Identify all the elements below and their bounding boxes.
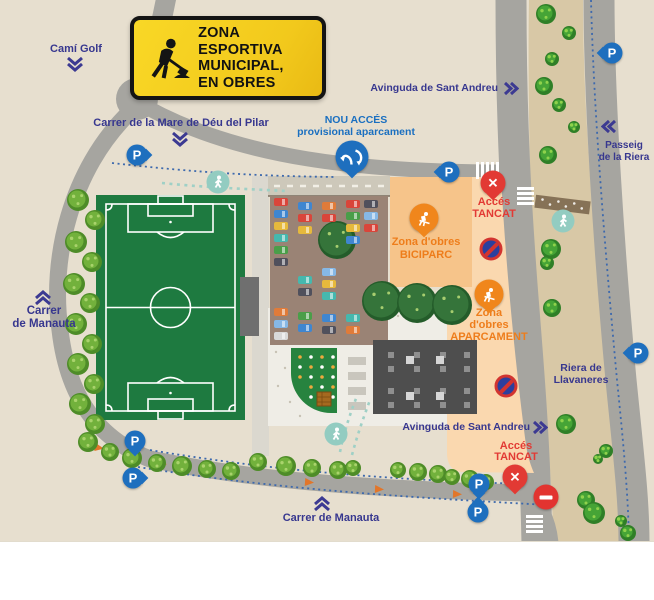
- street-manauta-sud: Carrer de Manauta: [283, 512, 380, 524]
- roadworks-pin-icon: [475, 280, 504, 309]
- parking-letter: P: [608, 46, 617, 61]
- access-closed-icon: ✕: [503, 465, 528, 490]
- pedestrian-icon: [207, 171, 230, 194]
- riera-line-1: Riera de: [554, 362, 609, 374]
- parking-letter: P: [634, 346, 643, 361]
- footer-bar: f X ajllavaneres.cat POLICIA LOCAL LLAVA…: [0, 541, 654, 600]
- parking-letter: P: [133, 148, 142, 163]
- no-parking-icon: [480, 238, 503, 261]
- no-parking-icon: [495, 375, 518, 398]
- sign-line-1: ZONA ESPORTIVA: [198, 25, 314, 58]
- new-access-arrows-icon: [336, 141, 369, 174]
- no-parking-bar: [497, 377, 516, 396]
- parking-letter: P: [131, 434, 140, 449]
- parking-icon: P: [468, 502, 489, 523]
- roadworks-pin-icon: [410, 204, 439, 233]
- biciparc-line-2: BICIPARC: [392, 249, 461, 262]
- manauta-west-line-1: Carrer: [12, 305, 75, 318]
- access-closed-icon: ✕: [481, 171, 506, 196]
- sign-line-2: MUNICIPAL,: [198, 58, 314, 75]
- street-avinguda-sud: Avinguda de Sant Andreu: [402, 421, 530, 433]
- parking-icon: P: [125, 431, 146, 452]
- street-cami-golf: Camí Golf: [50, 43, 102, 55]
- tancat-line-2: TANCAT: [494, 452, 538, 463]
- chevron-left-icon: [601, 119, 617, 134]
- biciparc-line-1: Zona d'obres: [392, 236, 461, 249]
- tancat-line-2: TANCAT: [472, 208, 516, 220]
- street-passeig-riera: Passeig de la Riera: [599, 140, 650, 164]
- no-parking-bar: [482, 240, 501, 259]
- aparcament-line-3: APARCAMENT: [450, 331, 527, 343]
- parking-icon: P: [628, 343, 649, 364]
- chevron-down-icon: [66, 56, 84, 72]
- chevron-up-icon: [313, 496, 331, 512]
- sign-line-3: EN OBRES: [198, 75, 314, 92]
- parking-icon: P: [127, 145, 148, 166]
- parking-letter: P: [474, 505, 483, 520]
- works-warning-sign: ZONA ESPORTIVA MUNICIPAL, EN OBRES: [130, 16, 326, 100]
- closed-mark: ✕: [488, 175, 499, 191]
- closed-strip: [268, 176, 390, 196]
- parking-icon: P: [602, 43, 623, 64]
- nou-acces-line-1: NOU ACCÉS: [297, 114, 415, 126]
- street-mare-de-deu: Carrer de la Mare de Déu del Pilar: [93, 117, 268, 129]
- grandstand: [240, 277, 259, 336]
- closed-mark: ✕: [510, 469, 521, 485]
- parking-letter: P: [445, 165, 454, 180]
- map-area: ZONA ESPORTIVA MUNICIPAL, EN OBRES Camí …: [0, 0, 654, 541]
- passeig-line-2: de la Riera: [599, 152, 650, 164]
- chevron-right-icon: [532, 420, 548, 435]
- chevron-down-icon: [171, 131, 189, 147]
- zone-biciparc-label: Zona d'obres BICIPARC: [392, 236, 461, 262]
- nou-acces-line-2: provisional aparcament: [297, 126, 415, 138]
- street-avinguda-nord: Avinguda de Sant Andreu: [370, 82, 498, 94]
- parking-icon: P: [469, 474, 490, 495]
- no-entry-bar: [540, 495, 553, 499]
- pedestrian-icon: [552, 210, 575, 233]
- riera-line-2: Llavaneres: [554, 374, 609, 386]
- parking-letter: P: [475, 477, 484, 492]
- football-field: [96, 195, 259, 420]
- passeig-line-1: Passeig: [599, 140, 650, 152]
- nou-acces-label: NOU ACCÉS provisional aparcament: [297, 114, 415, 138]
- parking-letter: P: [129, 471, 138, 486]
- chevron-up-icon: [34, 290, 52, 306]
- map-graphics: [0, 0, 654, 541]
- riera-label: Riera de Llavaneres: [554, 362, 609, 386]
- parking-icon: P: [123, 468, 144, 489]
- street-manauta-west: Carrer de Manauta: [12, 305, 75, 331]
- pedestrian-icon: [325, 423, 348, 446]
- parking-icon: P: [439, 162, 460, 183]
- chevron-right-icon: [503, 81, 519, 96]
- roadworks-icon: [142, 33, 190, 83]
- aparcament-line-2: d'obres: [450, 319, 527, 331]
- manauta-west-line-2: de Manauta: [12, 318, 75, 331]
- no-entry-icon: [534, 485, 559, 510]
- building: [373, 340, 477, 414]
- municipal-works-map-poster: ZONA ESPORTIVA MUNICIPAL, EN OBRES Camí …: [0, 0, 654, 600]
- acces-tancat-sud-label: Accés TANCAT: [494, 441, 538, 463]
- zone-biciparc-area: [390, 177, 472, 287]
- acces-tancat-nord-label: Accés TANCAT: [472, 196, 516, 220]
- sign-text: ZONA ESPORTIVA MUNICIPAL, EN OBRES: [198, 25, 314, 91]
